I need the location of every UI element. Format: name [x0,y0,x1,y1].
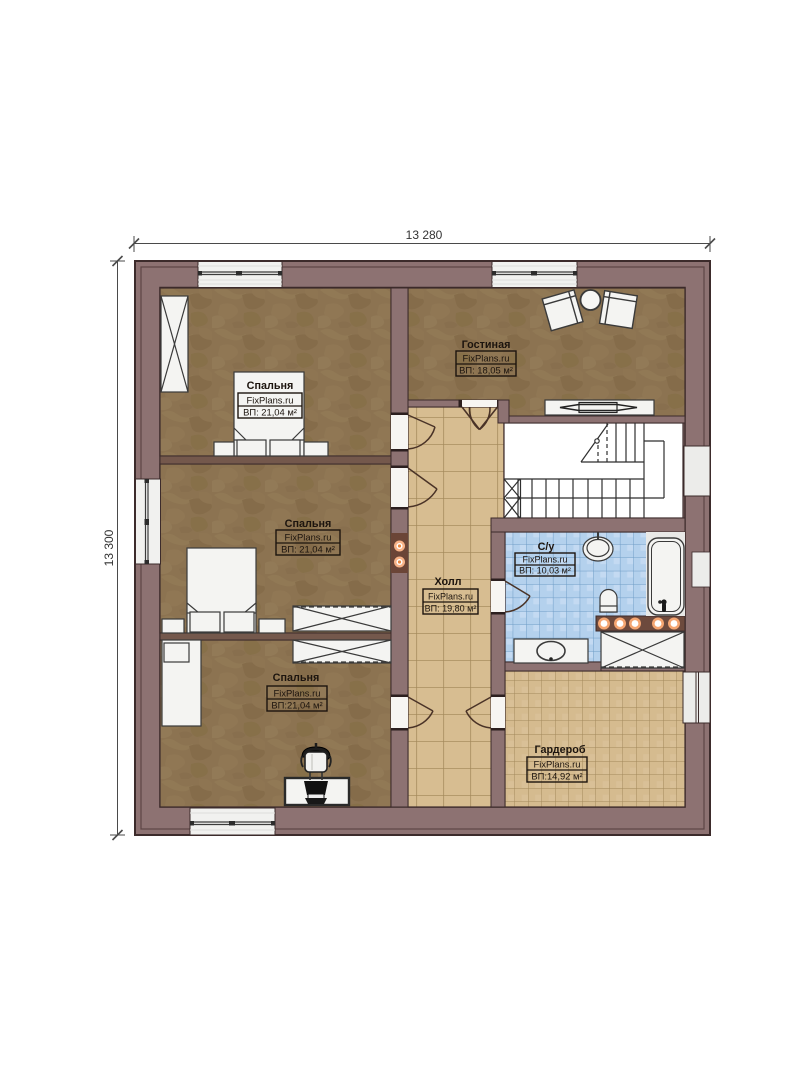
svg-text:FixPlans.ru: FixPlans.ru [285,532,332,543]
svg-text:Спальня: Спальня [285,518,332,530]
svg-text:Гостиная: Гостиная [462,339,511,351]
svg-text:FixPlans.ru: FixPlans.ru [274,688,321,699]
svg-text:С/у: С/у [538,541,555,553]
svg-text:ВП:14,92 м²: ВП:14,92 м² [531,771,582,782]
svg-text:Холл: Холл [434,576,461,588]
svg-text:ВП: 18,05 м²: ВП: 18,05 м² [459,365,513,376]
svg-text:ВП: 21,04 м²: ВП: 21,04 м² [243,407,297,418]
svg-text:ВП: 10,03 м²: ВП: 10,03 м² [519,566,571,576]
svg-text:ВП: 21,04 м²: ВП: 21,04 м² [281,544,335,555]
svg-text:ВП: 19,80 м²: ВП: 19,80 м² [425,604,477,614]
svg-text:FixPlans.ru: FixPlans.ru [428,592,473,602]
svg-text:FixPlans.ru: FixPlans.ru [247,395,294,406]
svg-text:FixPlans.ru: FixPlans.ru [463,353,510,364]
svg-text:FixPlans.ru: FixPlans.ru [522,555,567,565]
svg-text:Спальня: Спальня [273,672,320,684]
svg-text:Гардероб: Гардероб [534,744,585,756]
svg-text:ВП:21,04 м²: ВП:21,04 м² [271,700,322,711]
svg-text:13 300: 13 300 [102,529,116,566]
svg-text:FixPlans.ru: FixPlans.ru [534,759,581,770]
svg-text:Спальня: Спальня [247,380,294,392]
svg-text:13 280: 13 280 [406,228,443,242]
